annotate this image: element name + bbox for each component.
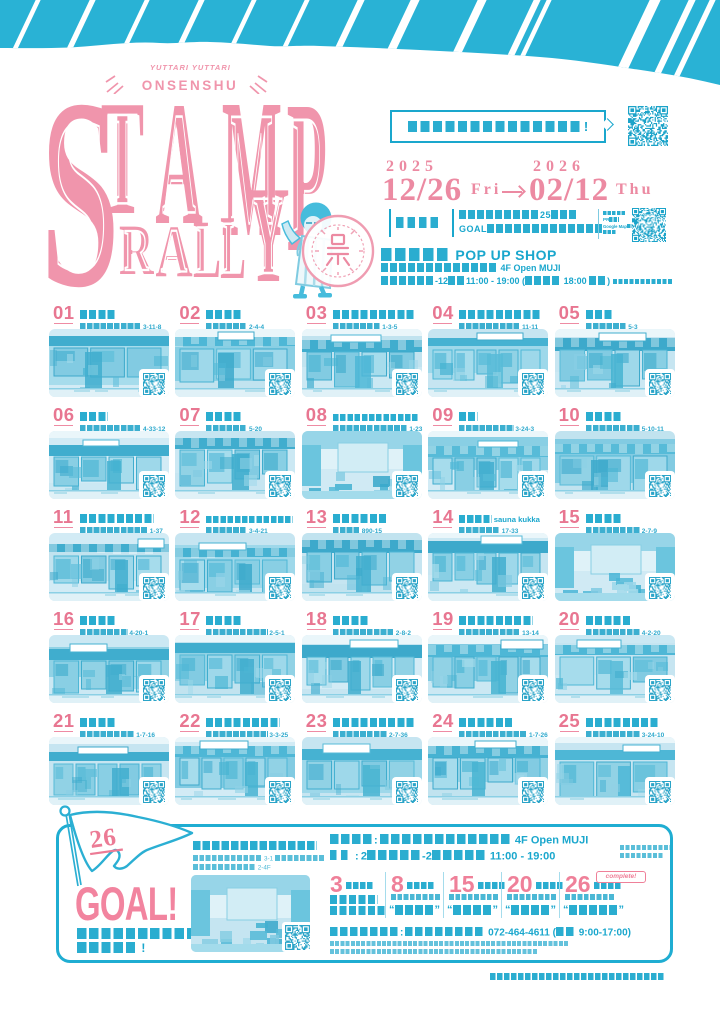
svg-text:R: R — [124, 218, 149, 283]
svg-text:L: L — [197, 212, 216, 287]
svg-text:26: 26 — [88, 823, 118, 853]
svg-text:A: A — [161, 217, 187, 285]
svg-text:S: S — [53, 95, 108, 310]
svg-text:L: L — [224, 207, 242, 289]
